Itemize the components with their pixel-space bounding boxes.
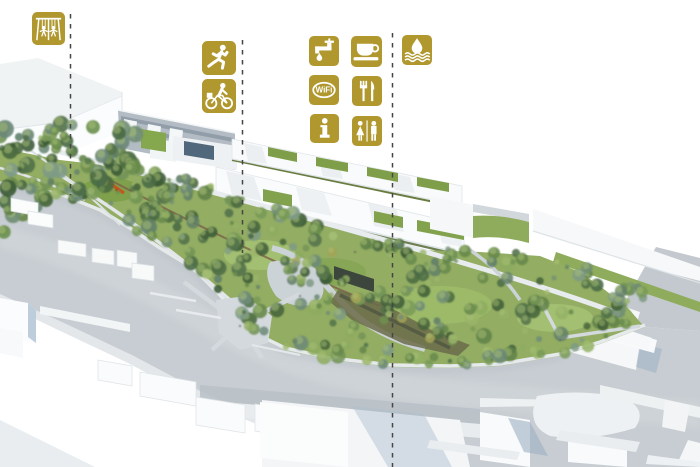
svg-text:WiFi: WiFi [316, 86, 333, 95]
